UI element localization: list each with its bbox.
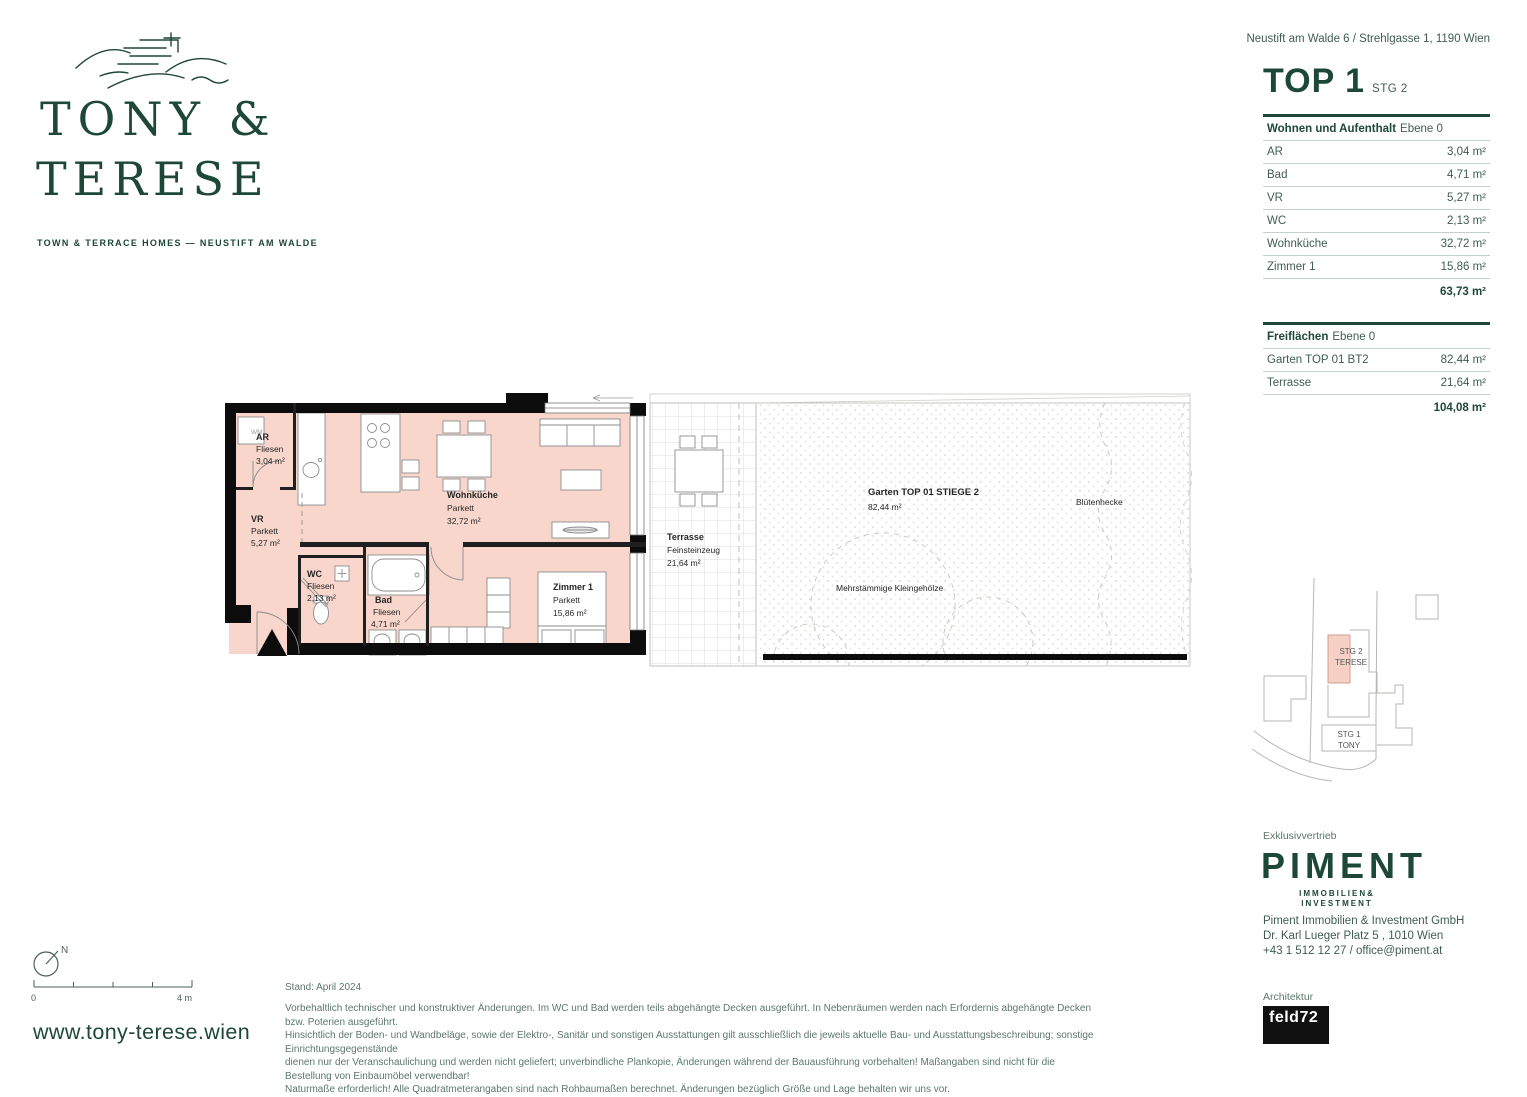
room-area: 5,27 m² <box>1447 192 1486 204</box>
svg-text:TONY: TONY <box>1338 741 1361 750</box>
piment-sublogo: IMMOBILIEN& INVESTMENT <box>1263 889 1411 909</box>
svg-text:3,04 m²: 3,04 m² <box>256 456 285 466</box>
svg-text:5,27 m²: 5,27 m² <box>251 538 280 548</box>
garden-area <box>756 403 1192 680</box>
piment-logo: PIMENT <box>1261 845 1427 887</box>
wm-label: WM <box>251 429 263 436</box>
disclaimer-line: Hinsichtlich der Boden- und Wandbeläge, … <box>285 1029 1100 1056</box>
svg-text:4,71 m²: 4,71 m² <box>371 619 400 629</box>
table-total: 63,73 m² <box>1263 279 1490 305</box>
disclaimer-line: Naturmaße erforderlich! Alle Quadratmete… <box>285 1083 1100 1097</box>
garden-name: Garten TOP 01 STIEGE 2 <box>868 487 979 498</box>
disclaimer-line: Vorbehaltlich technischer und konstrukti… <box>285 1002 1100 1029</box>
svg-text:82,44 m²: 82,44 m² <box>868 502 902 512</box>
svg-text:Fliesen: Fliesen <box>307 581 335 591</box>
wardrobe <box>487 578 510 628</box>
room-label: VR <box>1267 192 1283 204</box>
table-row: Bad4,71 m² <box>1263 164 1490 187</box>
unit-number: TOP 1 <box>1263 62 1365 100</box>
stg1-label: STG 1 <box>1337 730 1361 739</box>
table-row: WC2,13 m² <box>1263 210 1490 233</box>
svg-text:Parkett: Parkett <box>447 503 475 513</box>
north-arrow-icon: N <box>30 938 80 983</box>
pillow <box>542 630 571 645</box>
hedge-label: Blütenhecke <box>1076 497 1123 507</box>
garden-wall <box>763 654 1187 660</box>
plan-date: Stand: April 2024 <box>285 982 361 993</box>
room-area: 15,86 m² <box>1441 261 1486 273</box>
room-label: WC <box>1267 215 1286 227</box>
open-areas-table: Freiflächen Ebene 0 Garten TOP 01 BT282,… <box>1263 322 1490 421</box>
site-plan: STG 2 TERESE STG 1 TONY <box>1250 573 1455 785</box>
scale-bar: 0 4 m <box>30 978 205 1006</box>
website-link[interactable]: www.tony-terese.wien <box>33 1020 250 1045</box>
table-row: Garten TOP 01 BT282,44 m² <box>1263 349 1490 372</box>
table-row: AR3,04 m² <box>1263 141 1490 164</box>
dining-table <box>437 435 491 477</box>
disclaimer-line: dienen nur der Veranschaulichung und wer… <box>285 1056 1100 1083</box>
vendor-contact: Piment Immobilien & Investment GmbH Dr. … <box>1263 914 1464 959</box>
room-label: Terrasse <box>1267 377 1311 389</box>
room-label: Zimmer 1 <box>1267 261 1316 273</box>
room-label: Bad <box>1267 169 1287 181</box>
room-area: 82,44 m² <box>1441 354 1486 366</box>
disclaimer: Vorbehaltlich technischer und konstrukti… <box>285 1002 1100 1097</box>
table-total: 104,08 m² <box>1263 395 1490 421</box>
room-label: Wohnküche <box>1267 238 1328 250</box>
scale-start: 0 <box>31 993 36 1003</box>
room-label: AR <box>1267 146 1283 158</box>
svg-text:21,64 m²: 21,64 m² <box>667 558 701 568</box>
scale-end: 4 m <box>177 993 192 1003</box>
room-area: 21,64 m² <box>1441 377 1486 389</box>
toilet <box>314 602 329 624</box>
brand-tagline: TOWN & TERRACE HOMES — NEUSTIFT AM WALDE <box>37 238 318 248</box>
feld72-logo: feld72 <box>1263 1006 1329 1044</box>
architect-label: Architektur <box>1263 991 1313 1003</box>
kitchen-sink <box>303 463 319 478</box>
table-level: Ebene 0 <box>1332 331 1375 343</box>
terrace-name: Terrasse <box>667 532 704 542</box>
table-row: Wohnküche32,72 m² <box>1263 233 1490 256</box>
svg-text:15,86 m²: 15,86 m² <box>553 608 587 618</box>
stg2-label: STG 2 <box>1339 647 1363 656</box>
table-header: Wohnen und Aufenthalt Ebene 0 <box>1263 117 1490 141</box>
table-header: Freiflächen Ebene 0 <box>1263 325 1490 349</box>
room-name: Wohnküche <box>447 490 498 500</box>
neighbor-strip <box>650 394 1190 403</box>
room-area: 4,71 m² <box>1447 169 1486 181</box>
kitchen-island <box>361 414 400 492</box>
svg-text:32,72 m²: 32,72 m² <box>447 516 481 526</box>
svg-text:Parkett: Parkett <box>251 526 279 536</box>
vendor-label: Exklusivvertrieb <box>1263 830 1337 842</box>
svg-text:TERESE: TERESE <box>1335 658 1367 667</box>
svg-text:Parkett: Parkett <box>553 595 581 605</box>
table-title: Wohnen und Aufenthalt <box>1267 123 1396 135</box>
room-area: 2,13 m² <box>1447 215 1486 227</box>
room-area: 3,04 m² <box>1447 146 1486 158</box>
vendor-phone-email: +43 1 512 12 27 / office@piment.at <box>1263 944 1464 959</box>
svg-text:Fliesen: Fliesen <box>256 444 284 454</box>
table-row: Terrasse21,64 m² <box>1263 372 1490 395</box>
table-title: Freiflächen <box>1267 331 1328 343</box>
vendor-company: Piment Immobilien & Investment GmbH <box>1263 914 1464 929</box>
sofa <box>540 419 620 446</box>
pillow <box>575 630 604 645</box>
room-name: VR <box>251 514 264 524</box>
coffee-table <box>561 470 601 490</box>
room-name: WC <box>307 569 322 579</box>
table-level: Ebene 0 <box>1400 123 1443 135</box>
svg-text:2,13 m²: 2,13 m² <box>307 593 336 603</box>
room-label: Garten TOP 01 BT2 <box>1267 354 1369 366</box>
vendor-address: Dr. Karl Lueger Platz 5 , 1010 Wien <box>1263 929 1464 944</box>
brand-name-line2: TERESE <box>36 152 270 206</box>
shrub-label: Mehrstämmige Kleingehölze <box>836 583 944 593</box>
north-label: N <box>61 945 68 956</box>
table-row: VR5,27 m² <box>1263 187 1490 210</box>
room-name: Zimmer 1 <box>553 582 593 592</box>
brand-name-line1: TONY & <box>40 92 277 146</box>
staircase-label: STG 2 <box>1372 83 1408 95</box>
room-name: Bad <box>375 595 392 605</box>
room-area: 32,72 m² <box>1441 238 1486 250</box>
table-row: Zimmer 115,86 m² <box>1263 256 1490 279</box>
svg-text:Fliesen: Fliesen <box>373 607 401 617</box>
unit-title: TOP 1STG 2 <box>1263 62 1408 101</box>
living-areas-table: Wohnen und Aufenthalt Ebene 0 AR3,04 m² … <box>1263 114 1490 305</box>
floor-plan: AR Fliesen 3,04 m² VR Parkett 5,27 m² WC… <box>223 390 1198 680</box>
svg-text:Feinsteinzeug: Feinsteinzeug <box>667 545 720 555</box>
project-address: Neustift am Walde 6 / Strehlgasse 1, 119… <box>1246 33 1490 45</box>
